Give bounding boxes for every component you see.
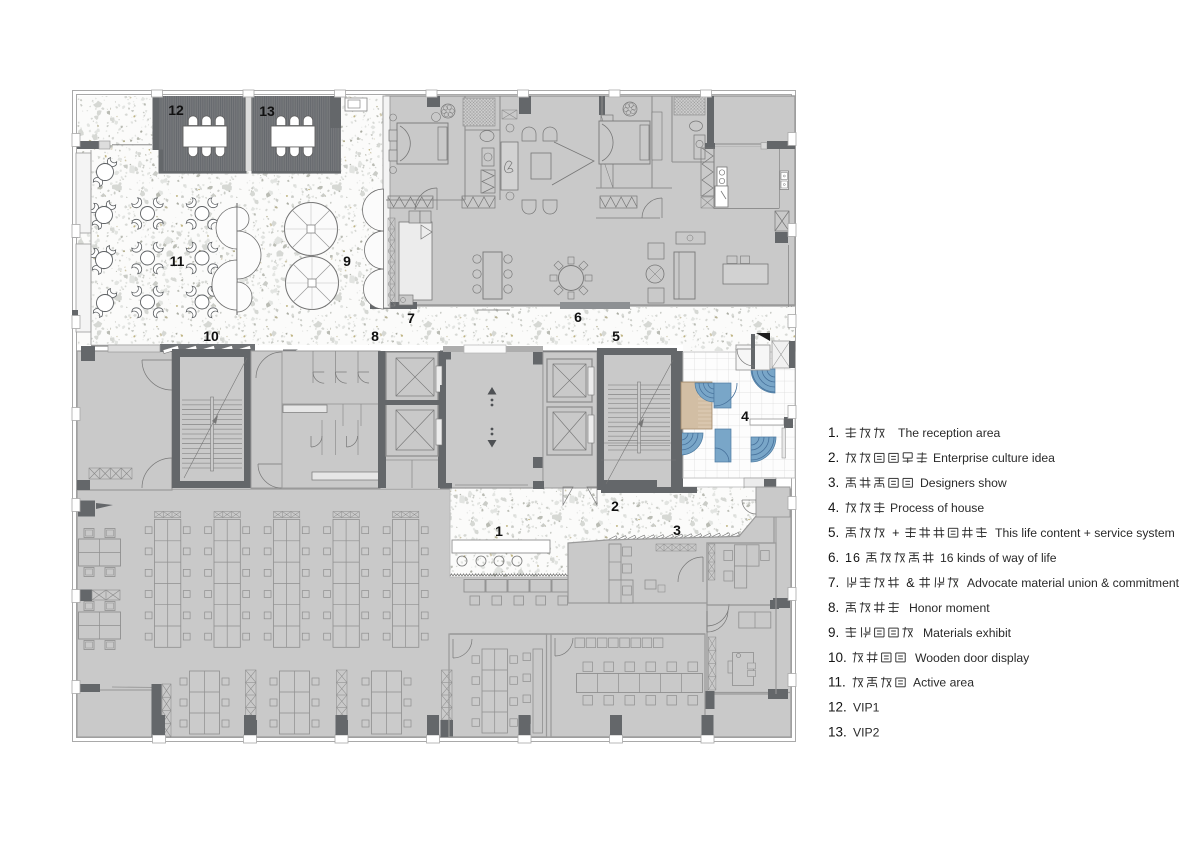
svg-text:Designers show: Designers show	[920, 476, 1007, 490]
svg-text:12.: 12.	[828, 700, 847, 715]
svg-text:2: 2	[611, 498, 619, 514]
svg-text:6: 6	[574, 309, 582, 325]
svg-text:Materials exhibit: Materials exhibit	[923, 626, 1012, 640]
svg-text:5.: 5.	[828, 525, 839, 540]
svg-text:1.: 1.	[828, 425, 839, 440]
svg-text:11.: 11.	[828, 675, 846, 690]
svg-text:16 kinds of way of life: 16 kinds of way of life	[940, 551, 1057, 565]
svg-text:10.: 10.	[828, 650, 847, 665]
svg-text:VIP2: VIP2	[853, 726, 880, 740]
svg-text:9.: 9.	[828, 625, 839, 640]
svg-text:2.: 2.	[828, 450, 839, 465]
svg-text:6: 6	[853, 551, 860, 565]
svg-text:10: 10	[203, 328, 219, 344]
svg-text:VIP1: VIP1	[853, 701, 880, 715]
svg-text:Active area: Active area	[913, 676, 974, 690]
svg-text:4.: 4.	[828, 500, 839, 515]
svg-text:3: 3	[673, 522, 681, 538]
svg-text:5: 5	[612, 328, 620, 344]
svg-text:7.: 7.	[828, 575, 839, 590]
svg-text:12: 12	[168, 102, 184, 118]
svg-text:Enterprise culture idea: Enterprise culture idea	[933, 451, 1055, 465]
svg-text:8.: 8.	[828, 600, 839, 615]
svg-text:+: +	[892, 526, 899, 540]
svg-text:4: 4	[741, 408, 749, 424]
svg-text:Honor moment: Honor moment	[909, 601, 990, 615]
svg-text:Advocate material union & comm: Advocate material union & commitment	[967, 576, 1180, 590]
svg-text:7: 7	[407, 310, 415, 326]
svg-text:11: 11	[170, 253, 185, 269]
svg-text:Process of house: Process of house	[890, 501, 984, 515]
svg-text:The reception area: The reception area	[898, 426, 1001, 440]
svg-text:Wooden door display: Wooden door display	[915, 651, 1030, 665]
svg-text:13.: 13.	[828, 725, 847, 740]
svg-text:1: 1	[845, 551, 852, 565]
svg-text:9: 9	[343, 253, 351, 269]
svg-text:&: &	[906, 576, 915, 590]
svg-text:1: 1	[495, 523, 503, 539]
svg-text:3.: 3.	[828, 475, 839, 490]
svg-text:13: 13	[259, 103, 275, 119]
svg-text:8: 8	[371, 328, 379, 344]
svg-text:6.: 6.	[828, 550, 839, 565]
svg-text:This life content + service sy: This life content + service system	[995, 526, 1175, 540]
